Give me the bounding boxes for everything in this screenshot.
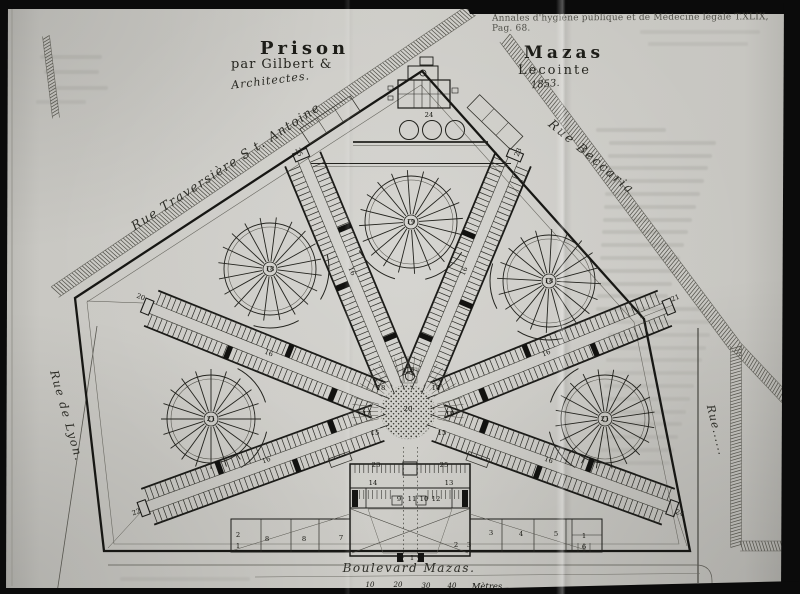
cell-partition [638,503,643,516]
cell-partition [343,237,355,242]
cell-partition [329,266,341,271]
cell-partition [444,341,456,346]
cell-partition [485,241,497,246]
cell-partition [481,187,493,192]
cell-partition [352,321,364,326]
street-hatch-tick [731,445,742,448]
cell-partition [554,332,559,345]
street-hatch-tick [702,302,711,312]
cell-partition [229,483,234,496]
cell-partition [451,435,456,448]
street-hatch-tick [52,109,59,113]
street-hatch-tick [74,271,84,280]
street-hatch-tick [731,392,742,395]
street-hatch-tick [390,57,400,66]
prison-plan-engraving: 2220252321241616161616162118191821201318… [0,0,800,594]
cell-partition [351,439,356,452]
cell-partition [257,359,262,372]
cell-partition [517,459,522,472]
street-hatch-tick [121,240,131,249]
street-hatch-tick [717,322,726,332]
street-hatch-tick [113,245,123,254]
cell-partition [212,341,217,354]
cell-partition [506,191,518,196]
street-hatch-tick [50,97,57,101]
cell-partition [461,439,466,452]
street-hatch-tick [424,35,434,44]
street-hatch-tick [682,275,691,285]
yard-spoke [361,209,404,220]
street-hatch-tick [444,21,454,30]
street-hatch-tick [439,24,449,33]
cell-partition [242,353,247,366]
cell-partition [483,246,495,251]
yard-spoke [536,231,547,274]
street-hatch-tick [731,489,742,492]
street-hatch-tick [670,260,679,270]
cell-partition [241,326,246,339]
plan-number: 16 [346,266,357,277]
cell-partition [155,484,160,497]
plan-number: 5 [554,530,558,538]
cell-partition [352,257,364,262]
plan-number: 9 [397,495,401,503]
street-hatch-tick [731,523,742,526]
cell-partition [366,292,378,297]
street-hatch-tick [52,112,59,116]
cell-partition [601,464,606,477]
cell-partition [342,393,347,406]
yard-spoke [598,369,604,411]
street-hatch-tick [452,16,462,25]
cell-partition [435,361,447,366]
plan-number: 2 [454,541,458,549]
street-hatch-tick [762,541,765,551]
street-hatch-tick [131,233,141,242]
cell-partition [431,371,443,376]
cell-partition [366,356,378,361]
cell-partition [565,451,570,464]
street-hatch-tick [731,516,742,519]
yard-spoke [557,281,601,283]
street-hatch-tick [630,205,639,215]
cell-partition [452,321,464,326]
cell-partition [572,479,577,492]
cell-partition [484,361,489,374]
cell-partition [234,481,239,494]
street-hatch-tick [47,69,54,73]
cell-partition [629,329,634,342]
plan-number: 14 [369,479,378,487]
service-annex [452,88,458,93]
cell-partition [287,371,292,384]
cell-partition [433,366,445,371]
plan-number: 4 [519,530,523,538]
street-hatch-tick [719,325,728,335]
cell-partition [500,206,512,211]
admin-block [350,464,470,556]
cell-partition [417,342,429,347]
cell-partition [236,324,241,337]
stair-block [352,490,358,507]
street-hatch-tick [115,243,125,252]
cell-partition [425,322,437,327]
street-hatch-tick [731,529,742,532]
cell-partition [316,172,328,177]
cell-partition [347,369,352,382]
street-hatch-tick [362,77,372,86]
cell-partition [525,436,530,449]
cell-partition [491,450,496,463]
cell-partition [262,361,267,374]
street-hatch-tick [731,405,742,408]
street-hatch-tick [672,263,681,273]
street-hatch-tick [669,258,678,268]
street-hatch-tick [507,41,516,51]
street-hatch-tick [731,473,742,476]
cell-partition [149,486,154,499]
cell-partition [317,383,322,396]
cell-partition [200,467,205,480]
cell-partition [516,167,528,172]
cell-partition [307,379,312,392]
stair-block [214,460,224,475]
cell-partition [604,339,609,352]
cell-partition [349,252,361,257]
cell-partition [459,371,464,384]
cell-partition [325,192,337,197]
cell-partition [470,276,482,281]
cell-partition [275,466,280,479]
street-hatch-tick [731,436,742,439]
cell-partition [491,226,503,231]
cell-partition [599,314,604,327]
cell-partition [163,507,168,520]
street-hatch-tick [657,243,666,253]
cell-partition [364,287,376,292]
street-hatch-tick [434,28,444,37]
cell-partition [448,267,460,272]
yard-spoke [367,194,404,217]
cell-partition [317,357,322,370]
cell-partition [456,311,468,316]
street-hatch-tick [770,380,776,390]
cell-partition [281,438,286,451]
tip-tie [87,301,143,303]
street-hatch-tick [708,310,717,320]
cell-partition [464,291,476,296]
yard-screen-wall [359,251,395,279]
street-hatch-tick [731,383,742,386]
street-hatch-tick [731,513,742,516]
cell-partition [640,298,645,311]
street-hatch-tick [64,278,74,287]
lean-to-divider [496,122,509,135]
cell-partition [348,311,360,316]
street-hatch-tick [768,378,774,388]
street-hatch-tick [515,51,524,61]
yard-spoke [398,230,409,273]
cell-partition [456,247,468,252]
yard-spoke [171,390,205,415]
street-hatch-tick [97,255,107,264]
cell-partition [180,475,185,488]
street-hatch-tick [711,315,720,325]
cell-partition [535,440,540,453]
cell-partition [489,359,494,372]
cell-partition [372,371,384,376]
cell-partition [347,247,359,252]
street-hatch-tick [764,374,770,384]
cell-partition [350,316,362,321]
cell-partition [292,434,297,447]
street-hatch-tick [762,371,768,381]
plan-number: 21 [207,415,216,423]
street-hatch-tick [377,66,387,75]
street-hatch-tick [777,541,780,551]
cell-partition [341,296,353,301]
street-hatch-tick [62,280,72,289]
apex-post [420,57,433,65]
street-hatch-tick [631,208,640,218]
cell-partition [515,432,520,445]
yard-screen-wall [490,263,497,308]
cell-partition [217,343,222,356]
plan-number: 10 [420,495,429,503]
street-hatch-tick [731,427,742,430]
cell-partition [339,291,351,296]
cell-partition [152,317,157,330]
cell-partition [272,338,277,351]
cell-partition [540,442,545,455]
street-hatch-tick [436,26,446,35]
plan-number: 16 [263,348,274,359]
yard-spoke [412,230,415,274]
street-hatch-tick [426,33,436,42]
yard-spoke [407,170,410,214]
cell-partition [618,496,623,509]
cell-partition [346,441,351,454]
street-hatch-tick [731,448,742,451]
yard-spoke [277,244,315,265]
cell-partition [210,464,215,477]
street-hatch-tick [731,399,742,402]
street-hatch-tick [548,96,557,106]
plan-number: 13 [445,479,454,487]
street-hatch-tick [509,44,518,54]
street-hatch-tick [418,38,428,47]
street-hatch-tick [731,535,742,538]
cell-partition [177,327,182,340]
cell-partition [444,277,456,282]
yard-spoke [182,379,207,413]
cell-partition [475,266,487,271]
cell-partition [509,351,514,364]
cell-partition [249,476,254,489]
stair-block [478,387,488,402]
cell-partition [310,157,322,162]
cell-partition [360,341,372,346]
cell-partition [609,310,614,323]
courtyard-diagonal [352,509,469,553]
cell-partition [318,177,330,182]
cell-partition [637,477,642,490]
cell-partition [315,452,320,465]
cell-partition [178,502,183,515]
plan-number: 8 [302,535,306,543]
street-hatch-tick [731,532,742,535]
yard-spoke [219,404,259,417]
scanned-page: 2220252321241616161616162118191821201318… [0,0,800,594]
cell-partition [312,226,324,231]
cell-partition [473,207,485,212]
street-hatch-tick [513,49,522,59]
cell-partition [232,349,237,362]
architect-credit: par Gilbert & [231,57,332,72]
street-hatch-tick [546,94,555,104]
street-hatch-tick [429,31,439,40]
cell-partition [459,412,464,425]
cell-partition [599,341,604,354]
cell-partition [473,391,478,404]
cell-partition [588,485,593,498]
street-hatch-tick [49,88,56,92]
plan-number: 12 [432,495,441,503]
street-hatch-tick [367,73,377,82]
street-hatch-tick [43,35,50,39]
cell-partition [198,494,203,507]
yard-spoke [278,270,322,275]
stair-block [459,299,474,309]
cell-partition [312,427,317,440]
street-hatch-tick [51,100,58,104]
cell-partition [310,221,322,226]
plan-number: 8 [265,535,269,543]
stair-block [327,419,337,434]
cell-partition [316,236,328,241]
cell-partition [201,310,206,323]
street-hatch-tick [663,250,672,260]
cell-partition [593,487,598,500]
plan-number: 13 [406,366,415,374]
yard-spoke [218,263,262,268]
street-hatch-tick [359,78,369,87]
cell-partition [305,455,310,468]
wedge-yard-hatch [353,419,378,425]
service-annex [388,96,393,100]
cell-partition [391,352,403,357]
cell-partition [467,222,479,227]
street-hatch-tick [656,240,665,250]
wedge-yard-hatch [437,419,462,425]
cell-partition [615,308,620,321]
yard-spoke [196,371,209,411]
yard-spoke [418,226,455,249]
street-hatch-tick [388,59,398,68]
cell-partition [582,483,587,496]
cell-partition [619,333,624,346]
cell-partition [559,330,564,343]
plan-number: 25 [293,147,304,158]
street-label-rue-traversiere: Rue Traversière S t. Antoine [127,99,323,233]
street-hatch-tick [685,280,694,290]
cell-partition [489,423,494,436]
cell-partition [468,393,473,406]
wing-corridor [425,161,518,384]
street-hatch-tick [749,541,752,551]
cell-partition [613,494,618,507]
plan-number: 19 [407,218,416,226]
cell-partition [594,316,599,329]
cell-partition [479,256,491,261]
cell-partition [437,356,449,361]
cell-partition [441,346,453,351]
cell-partition [611,467,616,480]
street-hatch-tick [648,230,657,240]
cell-partition [209,490,214,503]
yard-spoke [163,404,203,417]
street-hatch-tick [667,255,676,265]
cell-partition [247,328,252,341]
street-hatch-tick [380,64,390,73]
cell-partition [519,373,524,386]
cell-partition [192,333,197,346]
cell-partition [574,351,579,364]
street-hatch-tick [44,48,51,52]
street-hatch-tick [693,290,702,300]
cell-partition [614,335,619,348]
street-hatch-tick [652,235,661,245]
cell-partition [504,353,509,366]
cell-partition [468,281,480,286]
cell-partition [173,503,178,516]
yard-spoke [551,289,562,332]
street-hatch-tick [622,195,631,205]
street-hatch-tick [633,210,642,220]
street-hatch-tick [77,269,87,278]
street-hatch-tick [87,262,97,271]
scale-tick: 10 [366,581,375,589]
street-hatch-tick [678,270,687,280]
cell-partition [494,425,499,438]
cell-partition [267,363,272,376]
street-hatch-tick [746,541,749,551]
lean-to-divider [482,109,495,122]
cell-partition [433,302,445,307]
plan-number: 3 [489,529,493,537]
cell-partition [300,196,312,201]
cell-partition [322,359,327,372]
cell-partition [244,478,249,491]
cell-partition [357,373,362,386]
street-hatch-tick [51,103,58,107]
street-hatch-tick [375,68,385,77]
cell-partition [440,287,452,292]
cell-partition [496,452,501,465]
cell-partition [204,492,209,505]
street-hatch-tick [47,72,54,76]
cell-partition [319,241,331,246]
street-hatch-tick [731,479,742,482]
cell-partition [603,490,608,503]
street-hatch-tick [696,295,705,305]
cell-partition [352,398,357,411]
cell-partition [322,385,327,398]
cell-partition [664,315,669,328]
street-hatch-tick [50,91,57,95]
cell-partition [489,231,501,236]
cell-partition [342,367,347,380]
